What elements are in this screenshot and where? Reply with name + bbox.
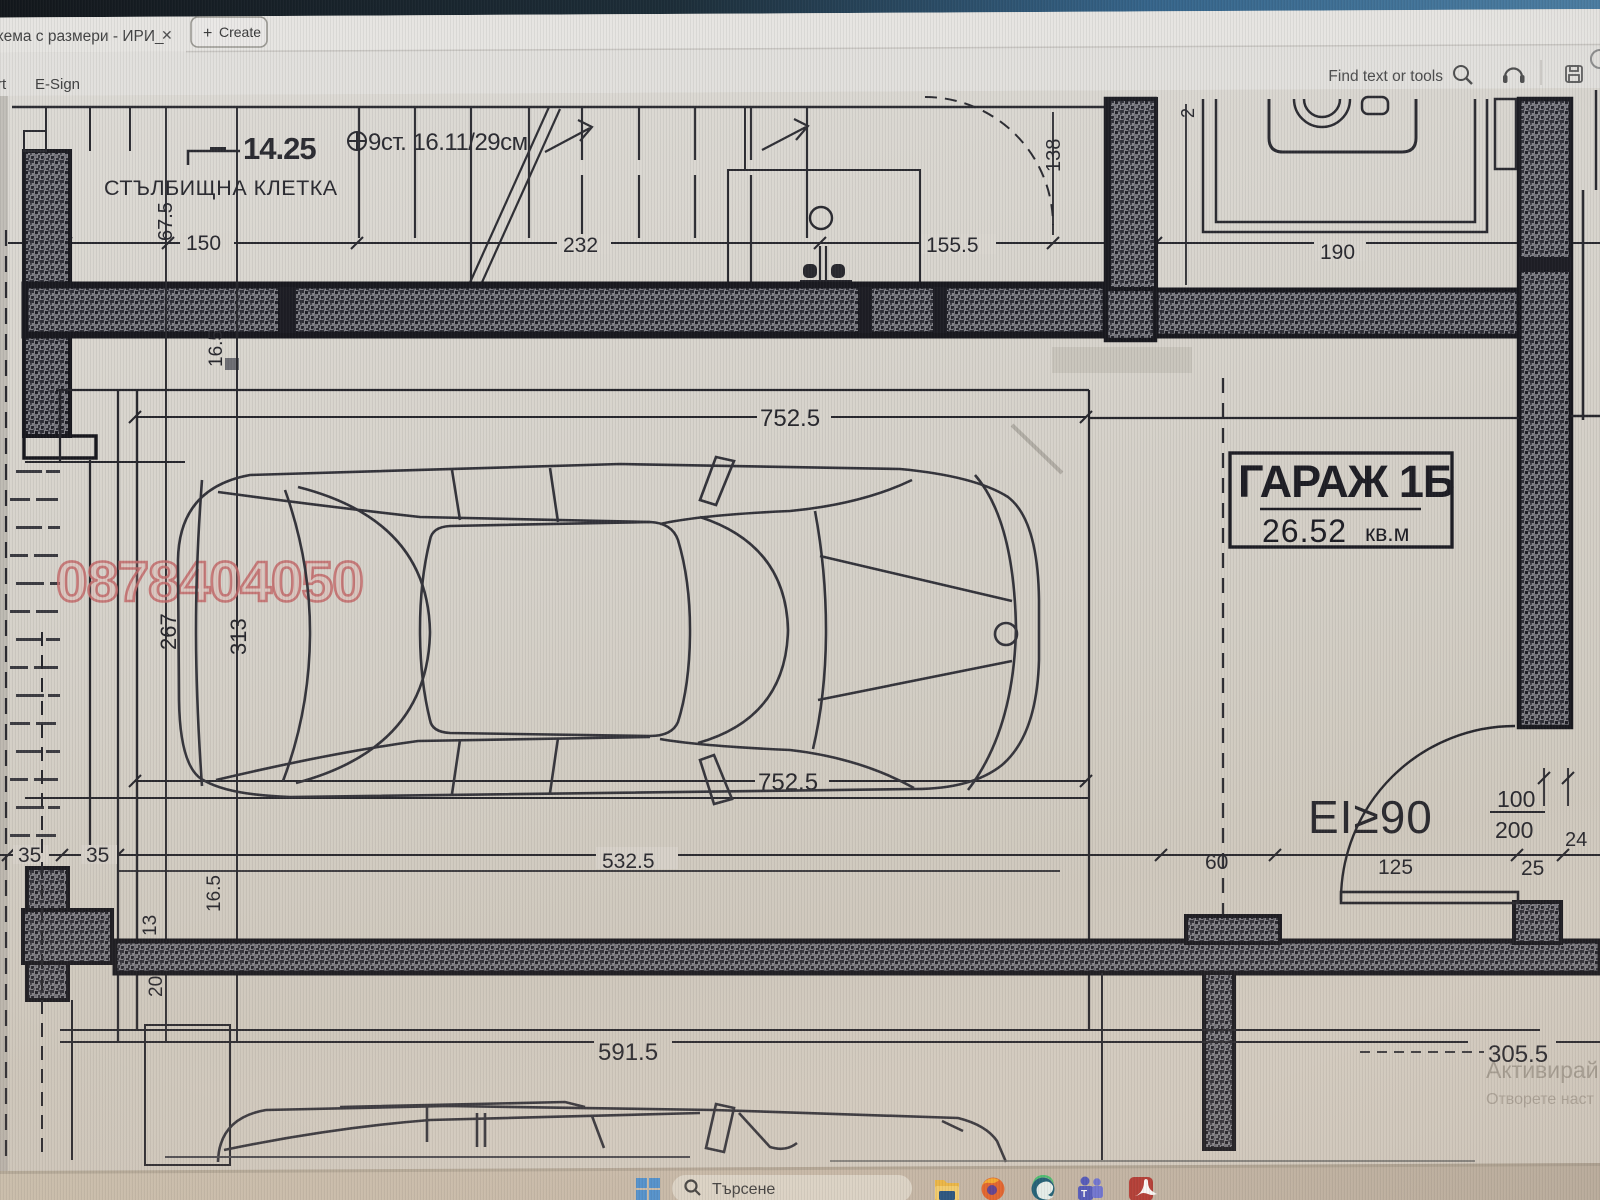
svg-text:9ст. 16.11/29см: 9ст. 16.11/29см <box>368 129 528 156</box>
svg-text:хема с размери - ИРИ_: хема с размери - ИРИ_ <box>0 28 164 45</box>
svg-text:Търсене: Търсене <box>712 1181 775 1198</box>
svg-text:125: 125 <box>1378 856 1413 879</box>
svg-text:+: + <box>203 25 212 42</box>
svg-text:EI≥90: EI≥90 <box>1308 791 1433 843</box>
svg-text:26.52: 26.52 <box>1262 513 1347 549</box>
svg-text:60: 60 <box>1205 851 1228 874</box>
svg-text:Create: Create <box>219 24 261 40</box>
svg-text:155.5: 155.5 <box>926 234 979 257</box>
svg-text:313: 313 <box>226 618 251 655</box>
svg-text:E-Sign: E-Sign <box>35 76 80 93</box>
svg-text:532.5: 532.5 <box>602 850 655 873</box>
svg-text:25: 25 <box>1521 857 1544 880</box>
svg-text:Отворете наст: Отворете наст <box>1486 1091 1594 1108</box>
svg-text:20: 20 <box>146 976 167 997</box>
svg-text:0878404050: 0878404050 <box>56 550 363 614</box>
svg-text:35: 35 <box>86 844 109 867</box>
svg-text:100: 100 <box>1497 786 1535 812</box>
svg-text:24: 24 <box>1565 829 1587 851</box>
svg-text:16.5: 16.5 <box>206 330 227 367</box>
svg-text:ГАРАЖ 1Б: ГАРАЖ 1Б <box>1238 456 1454 507</box>
svg-text:2: 2 <box>1178 108 1198 118</box>
svg-text:Активирай: Активирай <box>1486 1057 1599 1083</box>
svg-text:232: 232 <box>563 234 598 257</box>
svg-text:35: 35 <box>18 844 41 867</box>
svg-text:14.25: 14.25 <box>243 131 316 166</box>
svg-text:Find text or tools: Find text or tools <box>1328 68 1443 85</box>
svg-text:✕: ✕ <box>161 27 173 43</box>
svg-text:150: 150 <box>186 232 221 255</box>
svg-text:752.5: 752.5 <box>760 405 820 432</box>
svg-text:кв.м: кв.м <box>1365 520 1409 546</box>
svg-text:138: 138 <box>1043 139 1065 172</box>
svg-text:16.5: 16.5 <box>204 875 225 912</box>
svg-text:13: 13 <box>140 915 161 936</box>
svg-text:rt: rt <box>0 76 7 93</box>
svg-text:591.5: 591.5 <box>598 1039 658 1066</box>
svg-text:СТЪЛБИЩНА КЛЕТКА: СТЪЛБИЩНА КЛЕТКА <box>104 176 338 200</box>
svg-text:200: 200 <box>1495 817 1533 843</box>
svg-text:190: 190 <box>1320 241 1355 264</box>
svg-text:T: T <box>1081 1189 1087 1200</box>
